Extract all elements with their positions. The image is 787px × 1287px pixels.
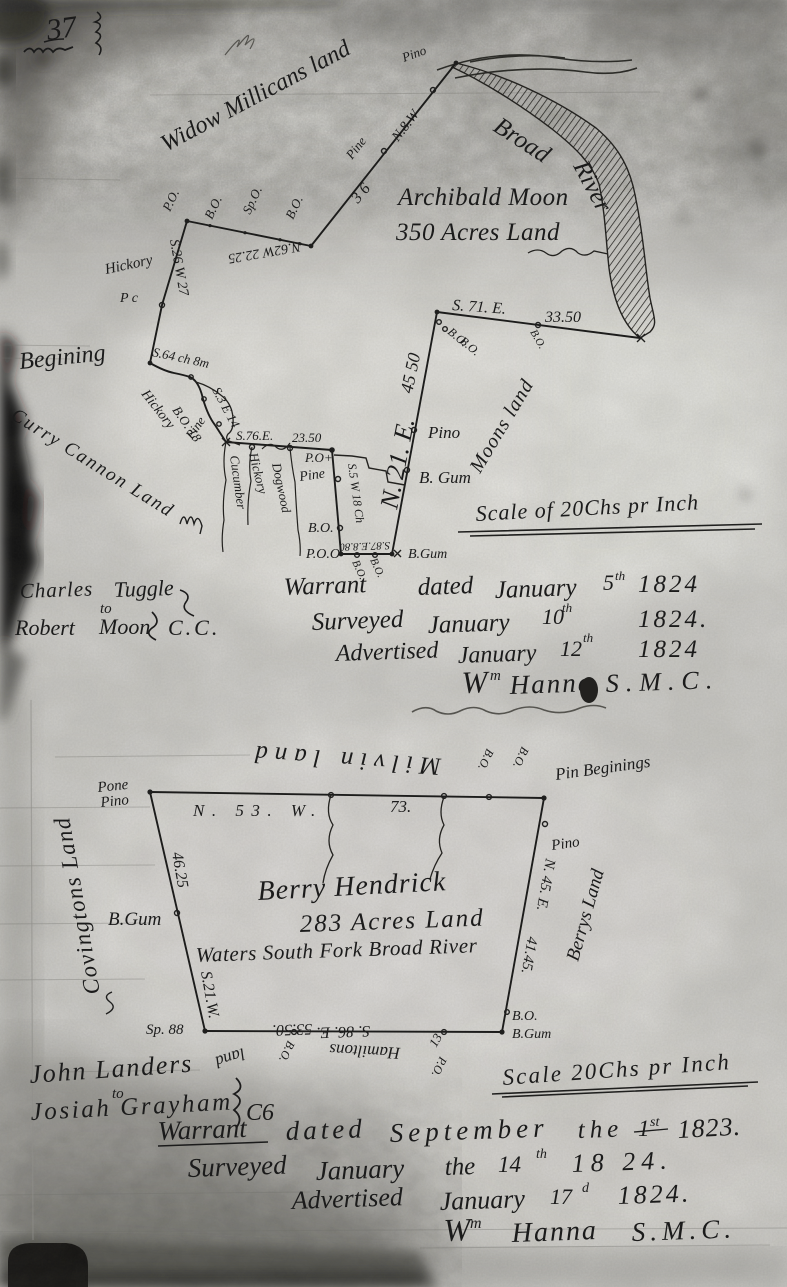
svg-text:th: th <box>583 630 593 645</box>
svg-text:Archibald Moon: Archibald Moon <box>396 184 569 211</box>
svg-text:Surveyed: Surveyed <box>311 606 404 636</box>
svg-text:m: m <box>470 1215 482 1232</box>
svg-text:1824.: 1824. <box>617 1178 691 1210</box>
svg-text:Moon: Moon <box>98 614 150 639</box>
svg-text:18 24.: 18 24. <box>571 1145 673 1178</box>
svg-text:1: 1 <box>638 1116 650 1141</box>
svg-text:Advertised: Advertised <box>289 1182 404 1215</box>
svg-text:m: m <box>490 668 501 684</box>
svg-text:P c: P c <box>119 291 139 306</box>
svg-text:73.: 73. <box>390 797 411 816</box>
svg-text:September: September <box>389 1112 549 1148</box>
svg-text:W: W <box>461 664 491 700</box>
svg-text:350 Acres Land: 350 Acres Land <box>395 219 560 246</box>
svg-text:January: January <box>427 609 511 639</box>
svg-text:P.O.O: P.O.O <box>305 547 340 562</box>
svg-text:B. Gum: B. Gum <box>419 468 471 487</box>
svg-text:the: the <box>577 1115 623 1144</box>
svg-text:Hamiltons: Hamiltons <box>328 1040 401 1063</box>
svg-text:th: th <box>536 1147 547 1162</box>
svg-text:the: the <box>444 1153 475 1181</box>
svg-text:14: 14 <box>498 1152 521 1177</box>
svg-text:1823.: 1823. <box>677 1112 742 1144</box>
svg-text:P.O+: P.O+ <box>304 450 333 465</box>
svg-text:Hanna: Hanna <box>510 1215 598 1249</box>
svg-text:Pino: Pino <box>427 423 460 442</box>
svg-text:53.50.: 53.50. <box>272 1020 313 1038</box>
svg-text:33.50: 33.50 <box>544 309 581 326</box>
svg-text:12: 12 <box>560 636 582 661</box>
svg-text:Advertised: Advertised <box>333 637 439 667</box>
svg-text:Sp. 88: Sp. 88 <box>146 1022 184 1038</box>
svg-text:S.87.E.8.80: S.87.E.8.80 <box>339 539 391 553</box>
svg-text:Tuggle: Tuggle <box>113 575 174 602</box>
svg-text:B.Gum: B.Gum <box>512 1027 551 1042</box>
svg-text:B.Gum: B.Gum <box>408 547 447 562</box>
svg-text:d: d <box>582 1181 590 1196</box>
svg-text:th: th <box>615 568 625 583</box>
svg-text:January: January <box>315 1153 404 1186</box>
svg-text:5: 5 <box>603 570 614 595</box>
svg-text:C.C.: C.C. <box>168 615 220 640</box>
svg-text:1824: 1824 <box>638 571 700 598</box>
svg-text:dated: dated <box>285 1113 366 1146</box>
svg-text:S.76.E.: S.76.E. <box>236 428 273 443</box>
svg-text:S. 86. E.: S. 86. E. <box>316 1022 370 1041</box>
svg-text:S.M.C.: S.M.C. <box>631 1213 736 1247</box>
svg-text:Warrant: Warrant <box>157 1113 249 1146</box>
svg-text:B.O.: B.O. <box>512 1009 538 1024</box>
svg-text:st: st <box>650 1115 660 1130</box>
svg-text:23.50: 23.50 <box>292 430 322 445</box>
svg-text:1824.: 1824. <box>638 606 709 633</box>
svg-text:dated: dated <box>417 572 474 601</box>
svg-text:th: th <box>562 600 572 615</box>
svg-text:Charles: Charles <box>19 576 93 603</box>
svg-text:N. 53. W.: N. 53. W. <box>192 801 323 820</box>
svg-text:Pino: Pino <box>99 792 130 811</box>
svg-text:S.M.C.: S.M.C. <box>605 665 719 698</box>
svg-text:10: 10 <box>542 604 564 629</box>
svg-text:Robert: Robert <box>14 615 76 640</box>
svg-text:1824: 1824 <box>638 636 700 663</box>
svg-text:B.Gum: B.Gum <box>108 909 161 930</box>
svg-text:Surveyed: Surveyed <box>187 1150 287 1183</box>
svg-text:Warrant: Warrant <box>283 571 367 601</box>
svg-text:17: 17 <box>550 1184 573 1209</box>
svg-text:B.O.: B.O. <box>308 521 334 536</box>
svg-text:C6: C6 <box>246 1100 274 1126</box>
